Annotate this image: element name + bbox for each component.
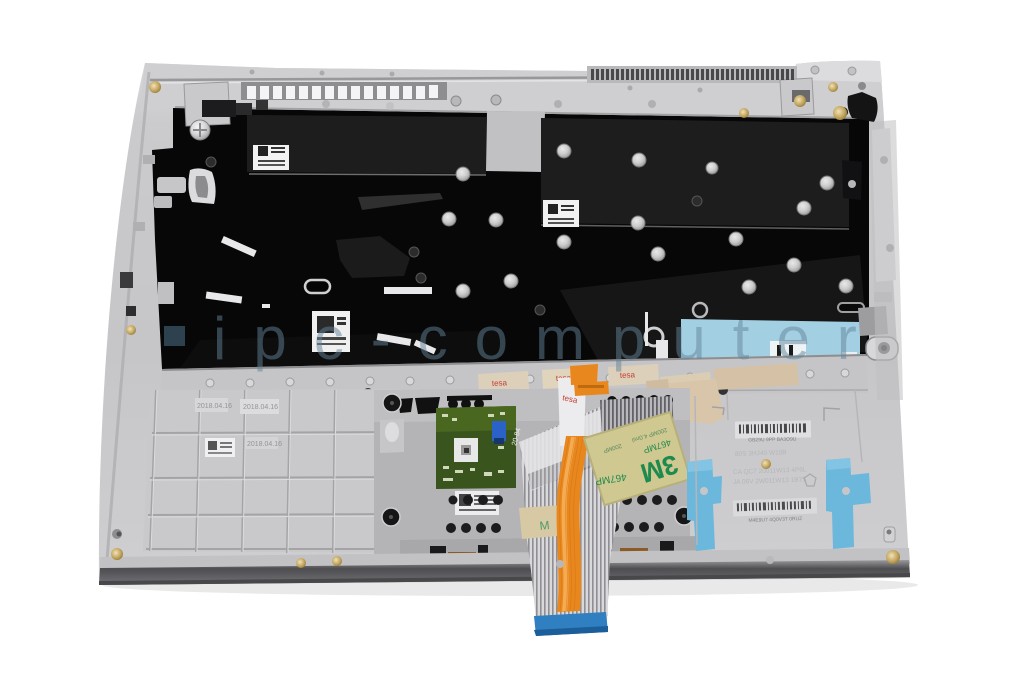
svg-text:M: M: [539, 518, 550, 533]
svg-text:2018.04.16: 2018.04.16: [243, 404, 278, 411]
svg-text:2018.04.16: 2018.04.16: [197, 403, 232, 410]
svg-text:tesa: tesa: [492, 378, 508, 388]
svg-text:GB29U 9PP BA3O9U: GB29U 9PP BA3O9U: [748, 437, 797, 444]
svg-text:ipc-computer: ipc-computer: [213, 305, 884, 372]
svg-text:2018.04.16: 2018.04.16: [247, 441, 282, 448]
